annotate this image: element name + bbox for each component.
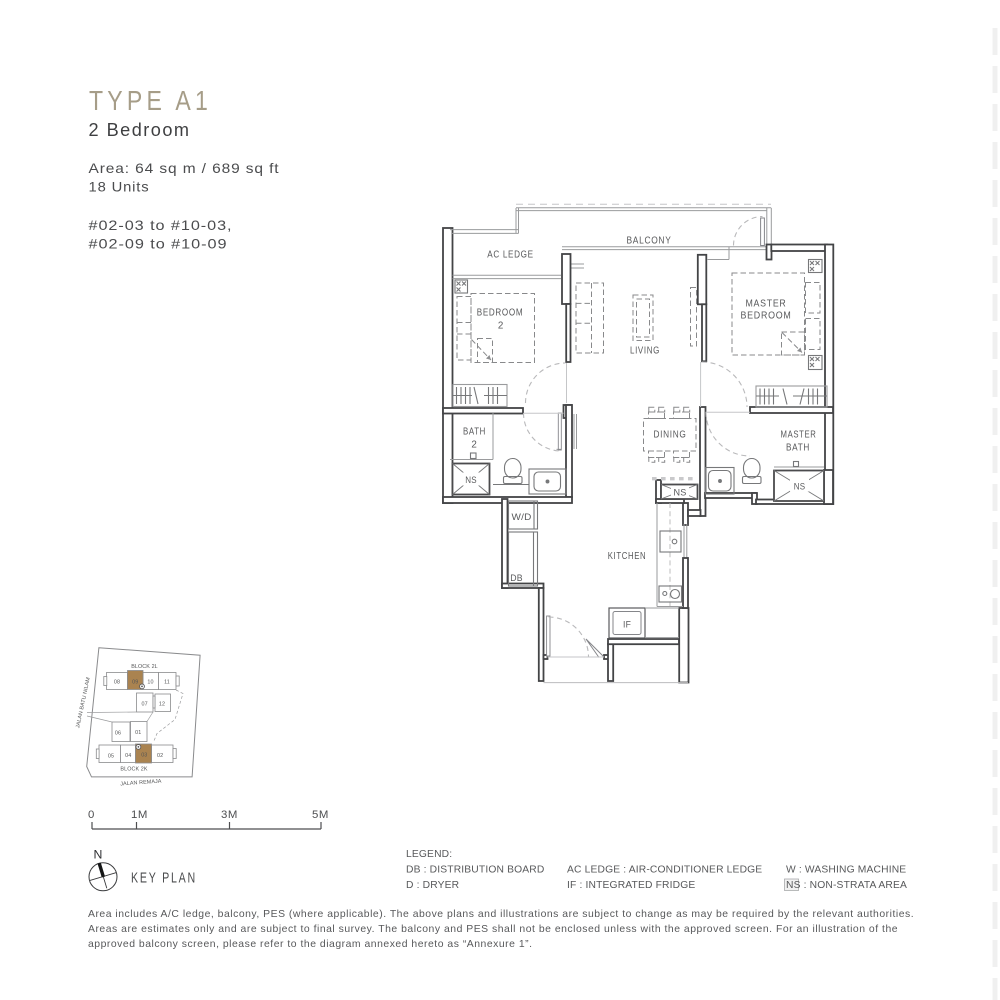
svg-text:BATH: BATH: [786, 443, 810, 454]
svg-text:NS: NS: [674, 488, 687, 498]
svg-text:3M: 3M: [221, 809, 238, 821]
svg-text:09: 09: [132, 680, 138, 686]
svg-text:IF: IF: [623, 620, 631, 630]
svg-text:12: 12: [159, 701, 165, 707]
svg-text:02: 02: [157, 753, 163, 759]
svg-text:MASTER: MASTER: [781, 430, 817, 441]
svg-text:BEDROOM: BEDROOM: [741, 311, 792, 322]
svg-text:2: 2: [471, 440, 477, 451]
svg-text:AC LEDGE : AIR-CONDITIONER LED: AC LEDGE : AIR-CONDITIONER LEDGE: [567, 865, 762, 876]
svg-text:W : WASHING MACHINE: W : WASHING MACHINE: [786, 865, 906, 876]
svg-text:03: 03: [141, 753, 147, 759]
svg-text:06: 06: [115, 731, 121, 737]
svg-text:BLOCK 2K: BLOCK 2K: [120, 767, 147, 773]
svg-text:AC LEDGE: AC LEDGE: [487, 250, 534, 261]
svg-text:#02-03 to #10-03,: #02-03 to #10-03,: [89, 218, 233, 233]
svg-text:N: N: [94, 847, 103, 861]
svg-text:08: 08: [114, 680, 120, 686]
svg-text:01: 01: [135, 730, 141, 736]
svg-text:NS : NON-STRATA AREA: NS : NON-STRATA AREA: [786, 880, 907, 891]
svg-text:TYPE A1: TYPE A1: [89, 85, 212, 116]
svg-text:Area includes A/C ledge, balco: Area includes A/C ledge, balcony, PES (w…: [88, 909, 914, 920]
svg-text:5M: 5M: [312, 809, 329, 821]
svg-text:11: 11: [164, 680, 170, 686]
svg-text:IF : INTEGRATED FRIDGE: IF : INTEGRATED FRIDGE: [567, 880, 695, 891]
svg-text:07: 07: [141, 701, 147, 707]
svg-text:BEDROOM: BEDROOM: [477, 308, 524, 319]
svg-text:DB : DISTRIBUTION BOARD: DB : DISTRIBUTION BOARD: [406, 865, 544, 876]
svg-text:0: 0: [88, 809, 95, 821]
svg-text:04: 04: [125, 753, 131, 759]
svg-text:2 Bedroom: 2 Bedroom: [89, 119, 191, 140]
svg-text:LIVING: LIVING: [630, 346, 660, 357]
svg-text:NS: NS: [465, 475, 477, 485]
svg-text:approved balcony screen, pleas: approved balcony screen, please refer to…: [88, 939, 533, 950]
svg-text:BLOCK 2L: BLOCK 2L: [131, 664, 158, 670]
svg-text:05: 05: [108, 753, 114, 759]
svg-text:W/D: W/D: [512, 512, 532, 522]
svg-text:DINING: DINING: [654, 430, 687, 441]
svg-text:Area: 64 sq m / 689 sq ft: Area: 64 sq m / 689 sq ft: [89, 161, 280, 176]
svg-text:BALCONY: BALCONY: [627, 236, 672, 247]
svg-text:MASTER: MASTER: [746, 299, 787, 310]
svg-text:BATH: BATH: [463, 427, 486, 438]
svg-text:1M: 1M: [131, 809, 148, 821]
svg-text:2: 2: [498, 321, 504, 332]
svg-text:D : DRYER: D : DRYER: [406, 880, 459, 891]
svg-text:KITCHEN: KITCHEN: [608, 551, 647, 562]
svg-text:18 Units: 18 Units: [89, 180, 150, 195]
svg-text:KEY PLAN: KEY PLAN: [131, 870, 197, 887]
svg-text:NS: NS: [794, 482, 806, 492]
svg-text:DB: DB: [510, 573, 523, 583]
svg-text:10: 10: [147, 680, 153, 686]
svg-text:Areas are estimates only and a: Areas are estimates only and are subject…: [88, 924, 898, 935]
svg-text:LEGEND:: LEGEND:: [406, 849, 452, 860]
svg-text:#02-09 to #10-09: #02-09 to #10-09: [89, 237, 228, 252]
